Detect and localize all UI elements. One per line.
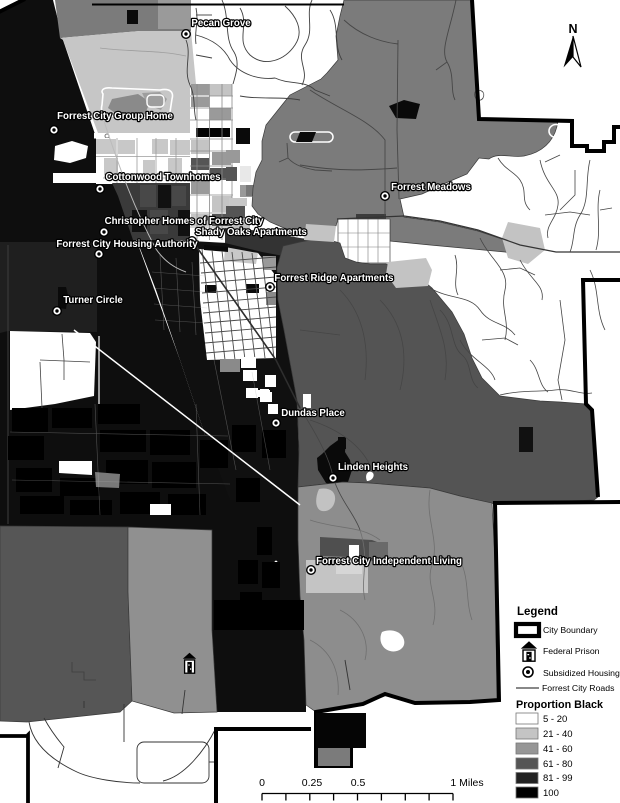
svg-text:61 - 80: 61 - 80	[543, 759, 573, 770]
svg-text:Forrest Ridge Apartments: Forrest Ridge Apartments	[274, 273, 393, 284]
svg-text:0.25: 0.25	[302, 777, 323, 789]
svg-text:41 - 60: 41 - 60	[543, 744, 573, 755]
svg-text:Forrest Meadows: Forrest Meadows	[391, 182, 471, 193]
svg-text:Pecan Grove: Pecan Grove	[191, 18, 251, 29]
svg-text:Proportion Black: Proportion Black	[516, 699, 604, 711]
svg-text:Forrest City Independent Livin: Forrest City Independent Living	[316, 556, 462, 567]
svg-text:Turner Circle: Turner Circle	[63, 295, 123, 306]
svg-text:21 - 40: 21 - 40	[543, 729, 573, 740]
svg-text:100: 100	[543, 788, 559, 799]
svg-text:City Boundary: City Boundary	[543, 625, 598, 635]
svg-text:0.5: 0.5	[351, 777, 366, 789]
svg-text:Linden Heights: Linden Heights	[338, 462, 408, 473]
svg-text:Federal Prison: Federal Prison	[543, 646, 600, 656]
svg-text:Shady Oaks Apartments: Shady Oaks Apartments	[195, 227, 307, 238]
svg-text:Legend: Legend	[517, 606, 558, 618]
svg-text:5 - 20: 5 - 20	[543, 714, 567, 725]
svg-text:Christopher Homes of Forrest C: Christopher Homes of Forrest City	[105, 216, 264, 227]
svg-text:N: N	[568, 22, 577, 36]
svg-text:Dundas Place: Dundas Place	[281, 408, 345, 419]
svg-text:Subsidized Housing: Subsidized Housing	[543, 668, 620, 678]
svg-text:0: 0	[259, 777, 265, 789]
svg-text:Forrest City Group Home: Forrest City Group Home	[57, 111, 173, 122]
svg-text:Forrest City Roads: Forrest City Roads	[542, 683, 615, 693]
svg-text:81 - 99: 81 - 99	[543, 773, 573, 784]
svg-text:Cottonwood Townhomes: Cottonwood Townhomes	[106, 172, 221, 183]
svg-text:Forrest City Housing Authority: Forrest City Housing Authority	[56, 239, 198, 250]
svg-text:1 Miles: 1 Miles	[450, 777, 483, 789]
